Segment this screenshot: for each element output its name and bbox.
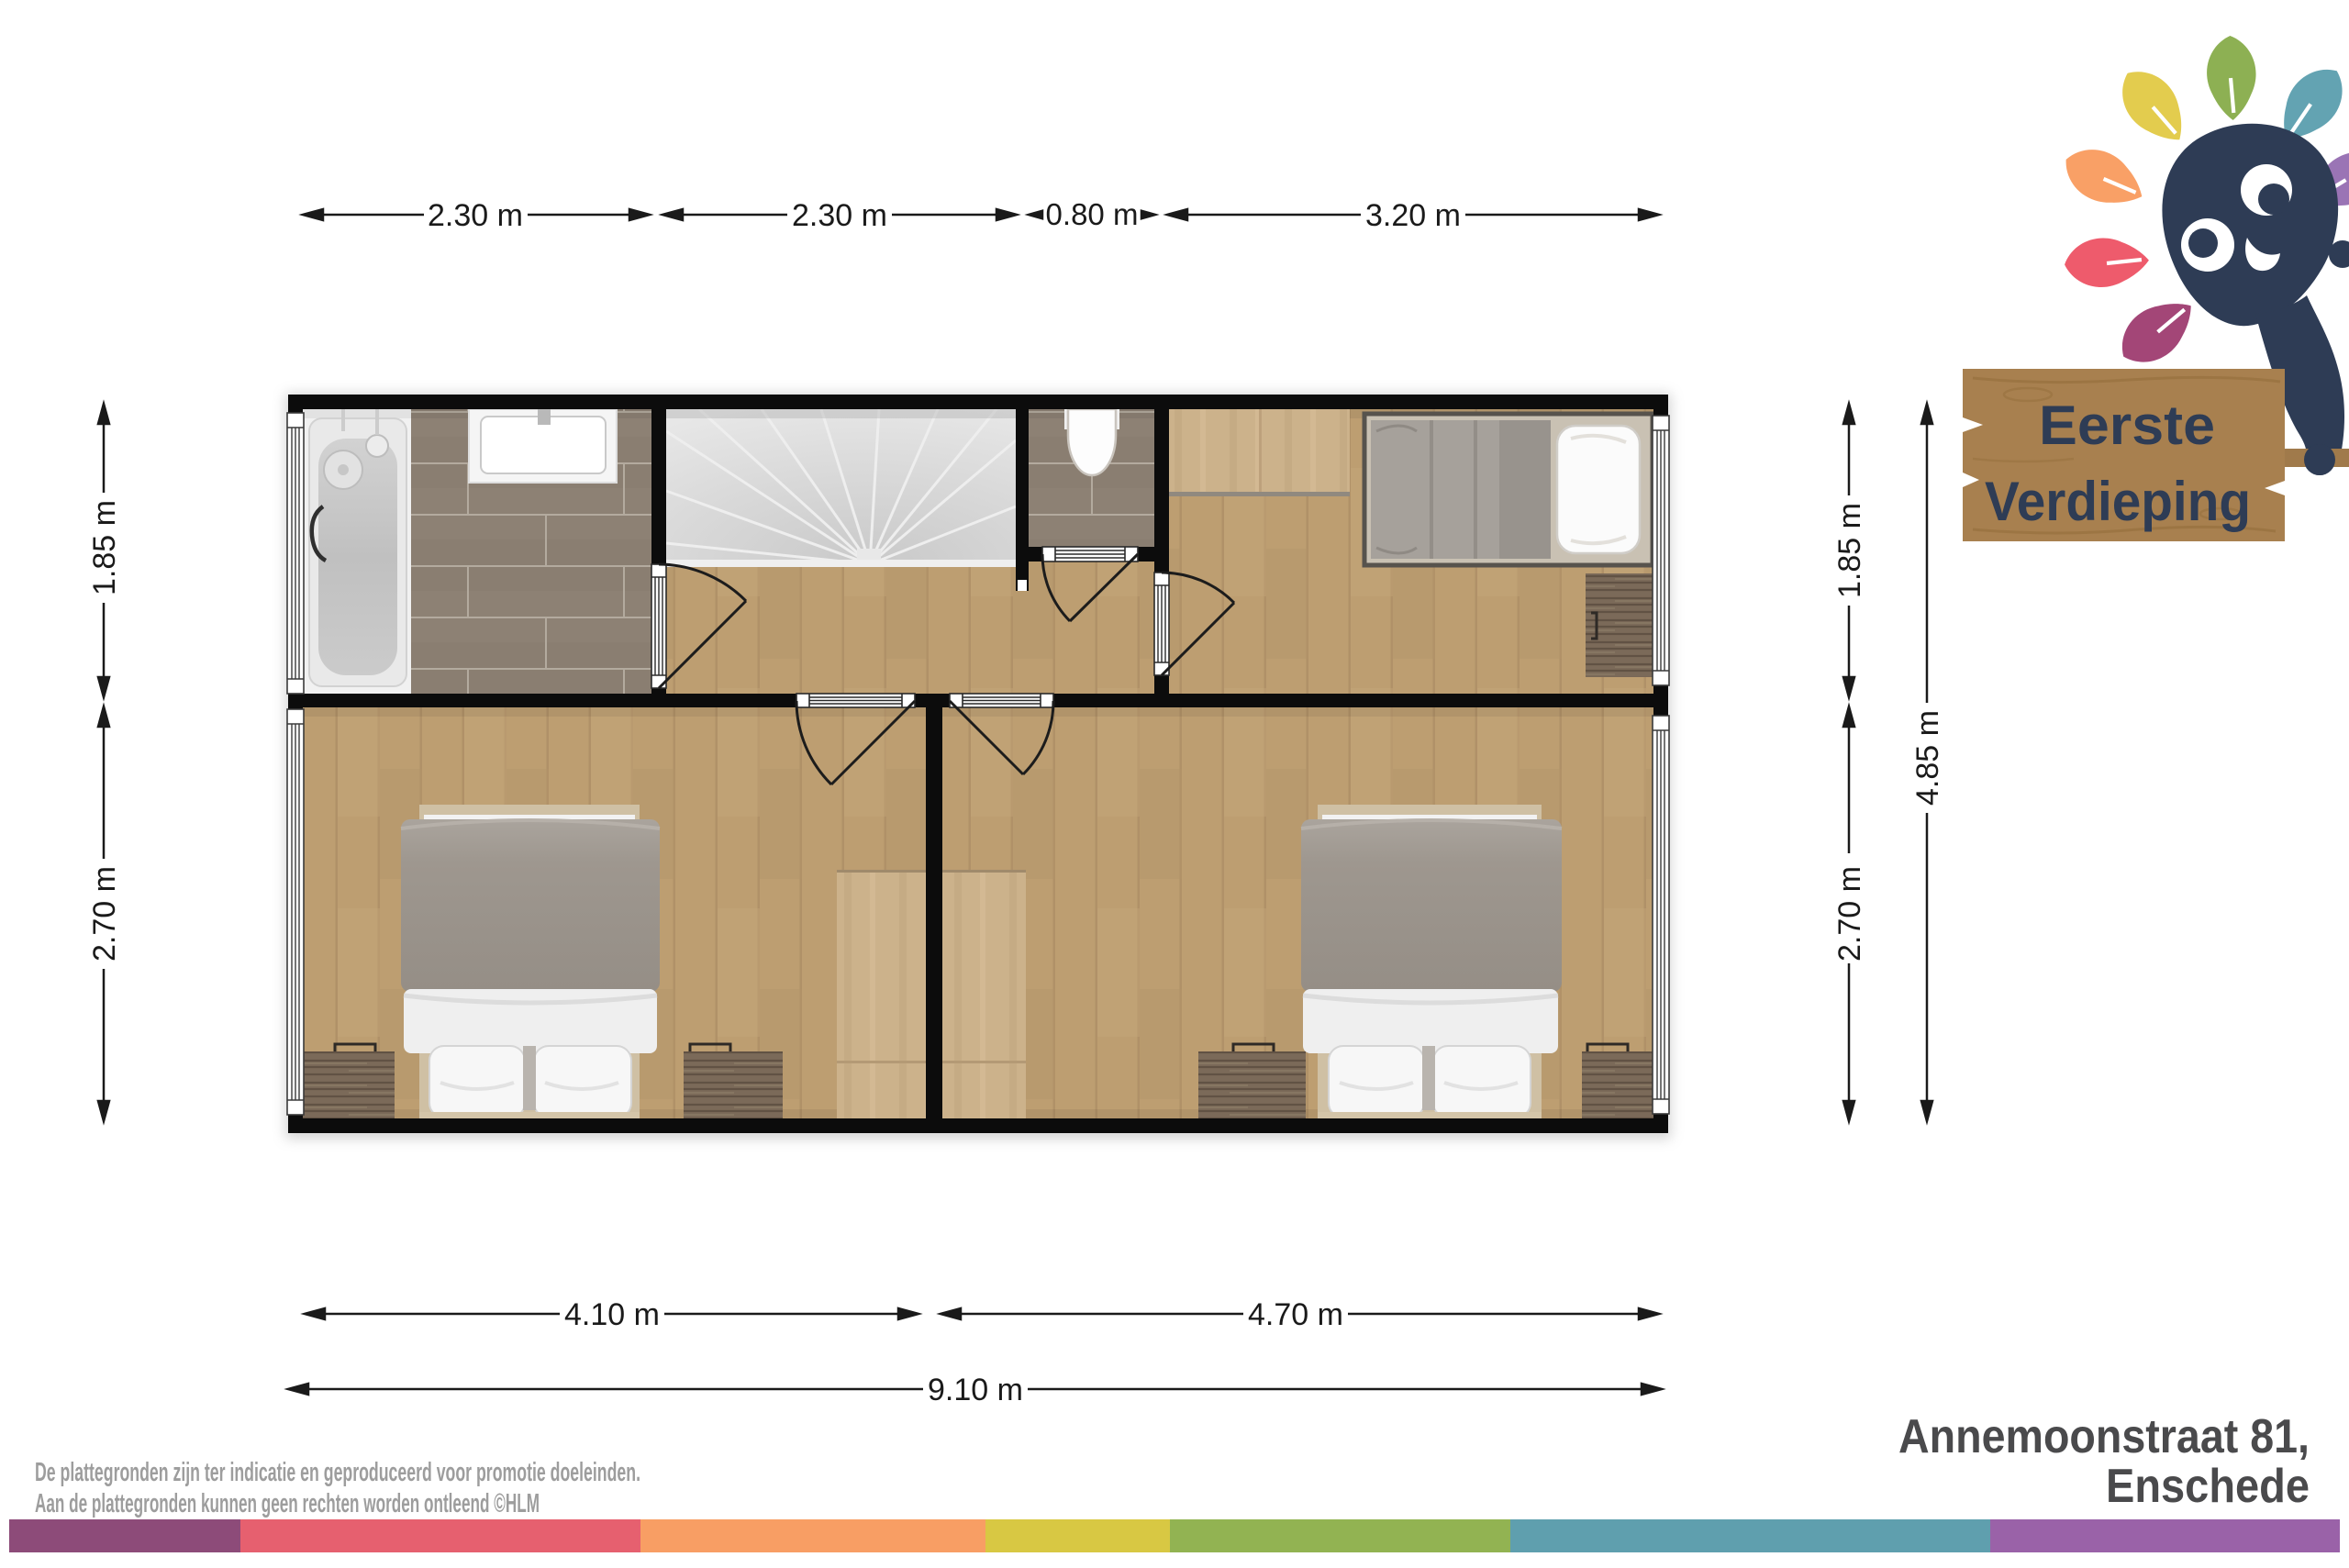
svg-text:4.70 m: 4.70 m xyxy=(1248,1297,1343,1332)
svg-text:1.85 m: 1.85 m xyxy=(87,500,122,595)
svg-text:2.30 m: 2.30 m xyxy=(428,198,523,233)
svg-text:Aan de plattegronden kunnen ge: Aan de plattegronden kunnen geen rechten… xyxy=(35,1489,540,1518)
svg-text:2.70 m: 2.70 m xyxy=(87,866,122,962)
svg-text:0.80 m: 0.80 m xyxy=(1046,197,1139,231)
svg-text:3.20 m: 3.20 m xyxy=(1365,198,1461,233)
svg-text:4.10 m: 4.10 m xyxy=(564,1297,660,1332)
svg-text:2.30 m: 2.30 m xyxy=(792,198,887,233)
svg-text:Eerste: Eerste xyxy=(2039,395,2215,456)
svg-text:Enschede: Enschede xyxy=(2106,1460,2310,1513)
svg-text:9.10 m: 9.10 m xyxy=(928,1373,1023,1407)
svg-text:2.70 m: 2.70 m xyxy=(1832,866,1867,962)
svg-text:De plattegronden zijn ter indi: De plattegronden zijn ter indicatie en g… xyxy=(35,1458,640,1487)
svg-text:Annemoonstraat 81,: Annemoonstraat 81, xyxy=(1898,1410,2310,1463)
svg-text:1.85 m: 1.85 m xyxy=(1832,503,1867,598)
svg-text:Verdieping: Verdieping xyxy=(1985,471,2251,532)
svg-text:4.85 m: 4.85 m xyxy=(1910,710,1945,806)
